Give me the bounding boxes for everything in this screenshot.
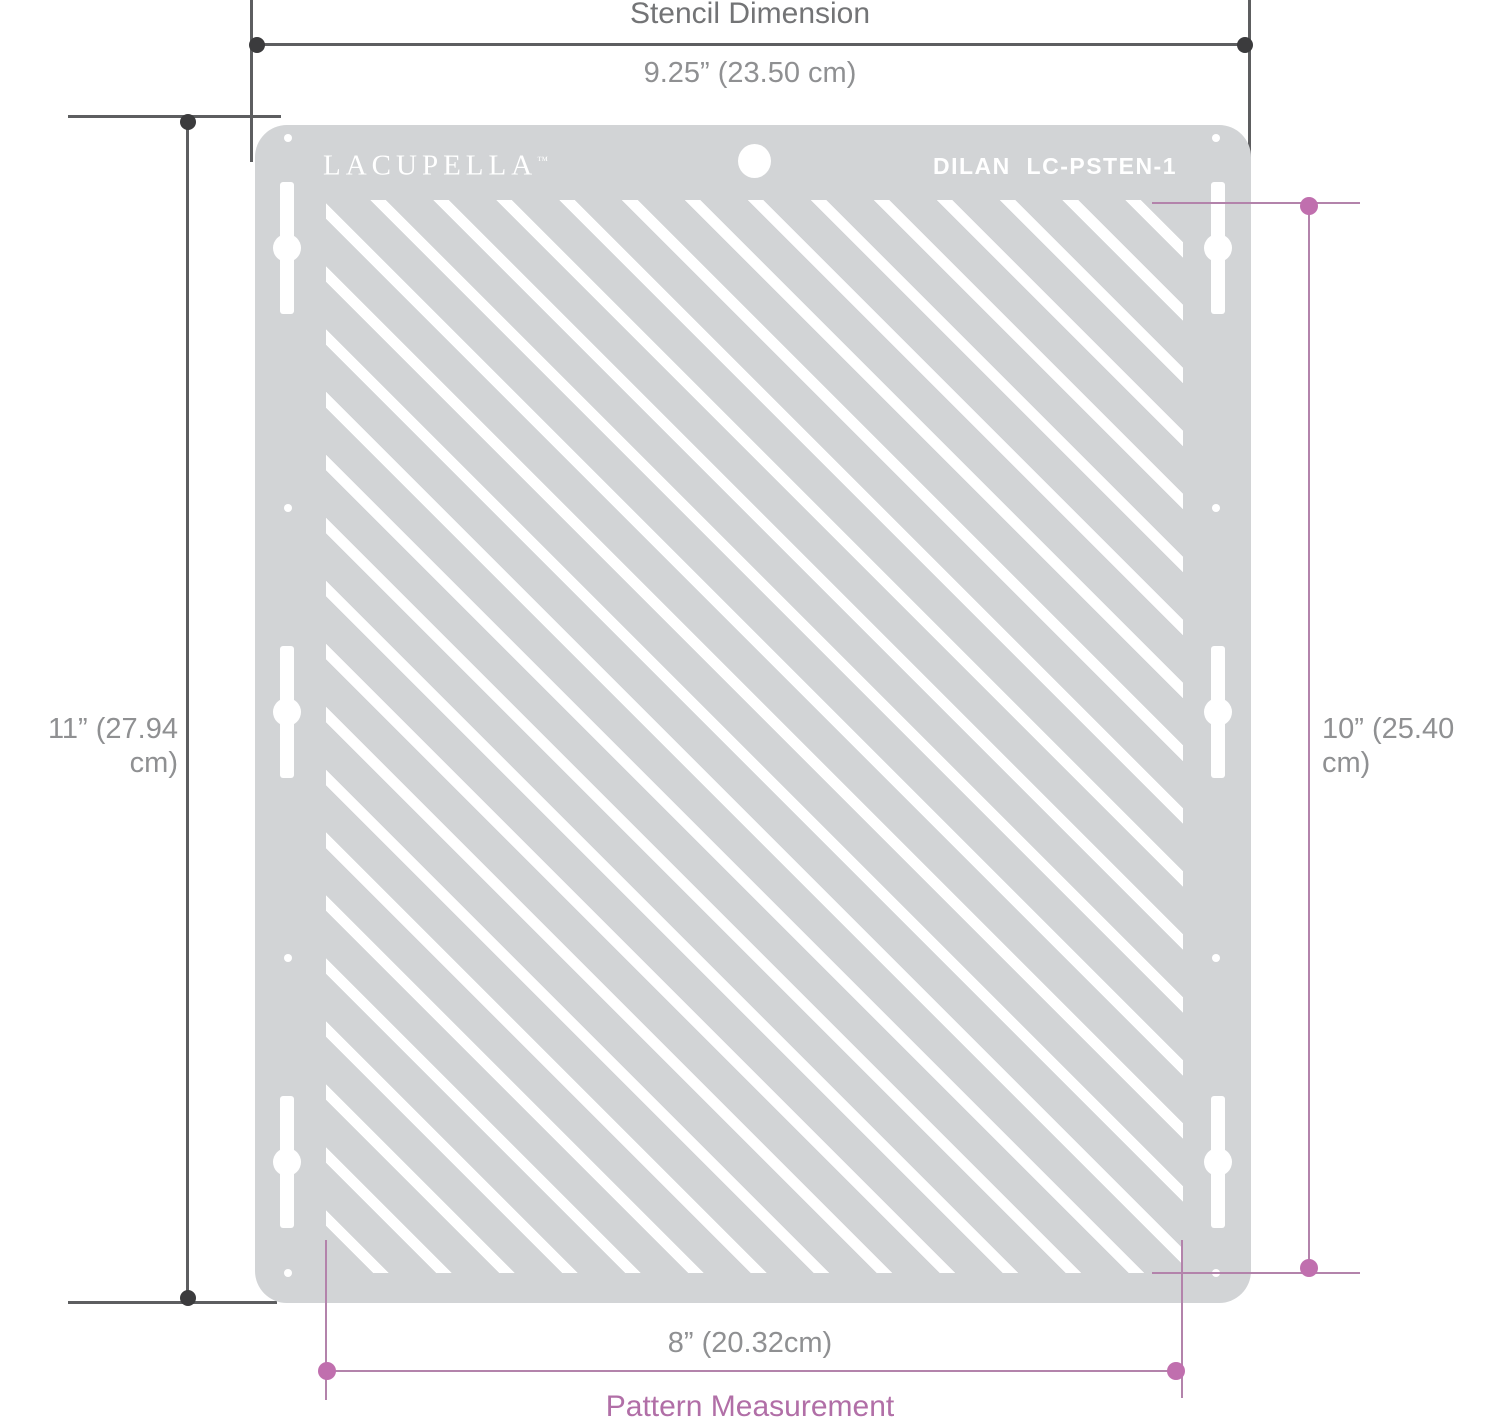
pattern-top-tick-line	[1152, 202, 1360, 204]
dimension-endpoint-dot-pink	[1300, 1259, 1318, 1277]
edge-pin-hole	[284, 504, 292, 512]
brand-logo: LACUPELLA™	[323, 145, 549, 182]
trademark-mark: ™	[537, 155, 549, 167]
top-right-extension-line	[1248, 0, 1251, 162]
dimension-endpoint-dot	[1237, 37, 1253, 53]
pattern-height-dimension-line	[1308, 203, 1310, 1271]
left-bottom-tick-line	[68, 1301, 277, 1304]
corner-pin-hole	[284, 1269, 292, 1277]
registration-circle	[1204, 234, 1232, 262]
stencil-width-value: 9.25” (23.50 cm)	[255, 56, 1245, 90]
diagram-title: Stencil Dimension	[255, 0, 1245, 31]
stencil-width-dimension-line	[257, 43, 1245, 46]
stencil-plate: LACUPELLA™ DILAN LC-PSTEN-1	[255, 125, 1251, 1303]
stencil-height-value: 11” (27.94 cm)	[0, 712, 178, 780]
pattern-height-value: 10” (25.40 cm)	[1322, 712, 1500, 780]
registration-circle	[273, 1148, 301, 1176]
dimension-endpoint-dot-pink	[1167, 1362, 1185, 1380]
center-hanging-hole	[738, 144, 771, 178]
pattern-measurement-label: Pattern Measurement	[255, 1390, 1245, 1424]
edge-pin-hole	[1212, 504, 1220, 512]
dimension-endpoint-dot-pink	[1300, 197, 1318, 215]
model-number: DILAN LC-PSTEN-1	[933, 153, 1177, 179]
dimension-endpoint-dot-pink	[318, 1362, 336, 1380]
registration-circle	[273, 698, 301, 726]
pattern-bottom-tick-line	[1152, 1272, 1360, 1274]
dimension-endpoint-dot	[180, 1290, 196, 1306]
diagonal-stripe-pattern	[326, 200, 1183, 1273]
edge-pin-hole	[284, 954, 292, 962]
left-top-tick-line	[68, 115, 281, 118]
registration-circle	[1204, 698, 1232, 726]
corner-pin-hole	[284, 134, 292, 142]
stencil-dimension-diagram: Stencil Dimension 9.25” (23.50 cm) 11” (…	[0, 0, 1500, 1425]
edge-pin-hole	[1212, 954, 1220, 962]
dimension-endpoint-dot	[249, 37, 265, 53]
registration-circle	[1204, 1148, 1232, 1176]
stencil-height-dimension-line	[186, 122, 189, 1298]
registration-circle	[273, 234, 301, 262]
corner-pin-hole	[1212, 134, 1220, 142]
pattern-width-value: 8” (20.32cm)	[255, 1326, 1245, 1360]
dimension-endpoint-dot	[180, 114, 196, 130]
brand-name: LACUPELLA	[323, 150, 537, 182]
pattern-width-dimension-line	[327, 1370, 1177, 1372]
top-left-extension-line	[250, 0, 253, 162]
